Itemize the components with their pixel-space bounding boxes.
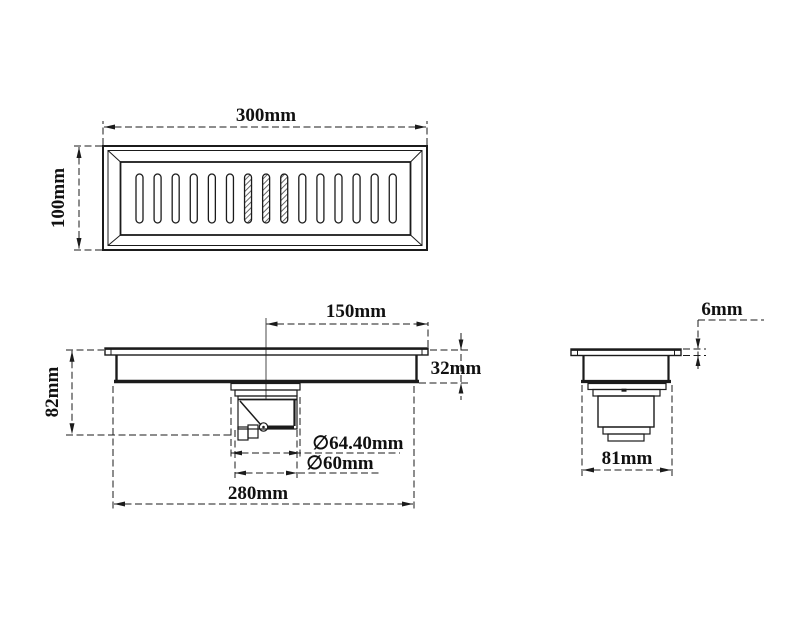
- flap-pivot-center: [262, 426, 265, 429]
- arrowhead: [231, 451, 242, 456]
- dim-label-height: 100mm: [48, 168, 69, 228]
- grate-slot: [245, 174, 252, 223]
- dim-width-300: 300mm: [103, 105, 427, 145]
- grate-slot: [208, 174, 215, 223]
- dim-label-82: 82mm: [42, 367, 63, 418]
- trap-housing: [238, 396, 297, 429]
- outlet-cylinder: [598, 396, 654, 427]
- grate-slot: [154, 174, 161, 223]
- arrowhead: [459, 340, 464, 351]
- dim-82: 82mm: [42, 350, 233, 435]
- arrowhead: [289, 451, 300, 456]
- outlet-step-right: [248, 425, 258, 438]
- arrowhead: [696, 339, 701, 350]
- outlet-step-3: [603, 427, 650, 434]
- arrowhead: [235, 471, 246, 476]
- grate-slot: [335, 174, 342, 223]
- grate-slot: [389, 174, 396, 223]
- dim-label-81: 81mm: [602, 448, 653, 469]
- arrowhead: [459, 383, 464, 394]
- dim-label-dia60: ∅60mm: [306, 453, 373, 474]
- grate-slot: [136, 174, 143, 223]
- dim-label-280: 280mm: [228, 483, 288, 504]
- end-view: 6mm 81mm: [571, 299, 764, 476]
- dim-height-100: 100mm: [48, 146, 102, 250]
- grate-slot: [281, 174, 288, 223]
- grate-slot: [299, 174, 306, 223]
- grate-slots: [136, 174, 396, 223]
- technical-drawing: 300mm 100mm: [0, 0, 800, 641]
- grate-slot: [263, 174, 270, 223]
- outlet-step-4: [608, 434, 644, 441]
- grate-slot: [371, 174, 378, 223]
- grate-slot: [353, 174, 360, 223]
- dim-label-width: 300mm: [236, 105, 296, 126]
- arrowhead: [286, 471, 297, 476]
- top-view: 300mm 100mm: [48, 105, 427, 250]
- arrowhead: [696, 356, 701, 367]
- drawing-canvas: 300mm 100mm: [0, 0, 800, 641]
- dim-dia-64: ∅64.40mm: [231, 397, 404, 458]
- grate-slot: [190, 174, 197, 223]
- front-view: 150mm 32mm 82mm ∅64.40mm: [42, 301, 481, 510]
- dim-81: 81mm: [582, 385, 672, 476]
- dim-label-150: 150mm: [326, 301, 386, 322]
- dim-label-6: 6mm: [701, 299, 742, 320]
- grate-slot: [172, 174, 179, 223]
- dim-label-dia64: ∅64.40mm: [313, 433, 404, 454]
- dim-150: 150mm: [267, 301, 429, 347]
- trap-flap: [240, 401, 261, 425]
- grate-slot: [317, 174, 324, 223]
- outlet-collar-upper: [231, 384, 300, 391]
- dim-6: 6mm: [683, 299, 764, 372]
- grate-slot: [226, 174, 233, 223]
- outlet-step-1: [588, 384, 666, 390]
- dim-label-32: 32mm: [431, 358, 482, 379]
